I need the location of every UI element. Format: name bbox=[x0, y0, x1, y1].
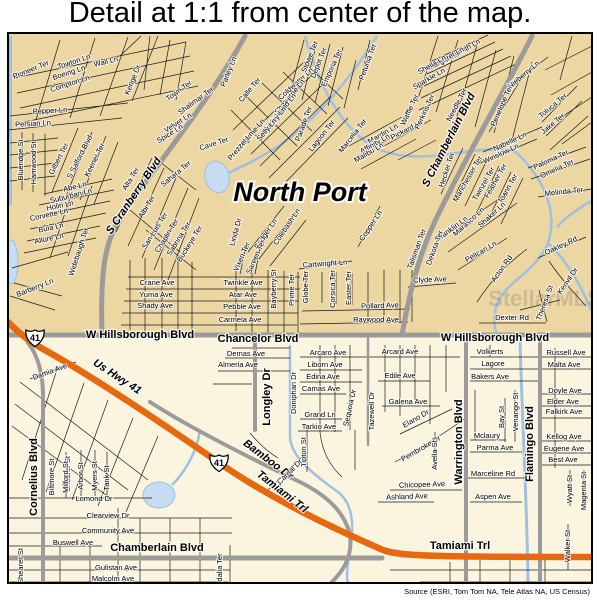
street-label: Kellog Ave bbox=[546, 432, 581, 441]
road-label: Warrington Blvd bbox=[453, 399, 465, 484]
street-label: Yuma Ave bbox=[139, 290, 173, 299]
street-label: Biltmore St bbox=[47, 458, 56, 496]
road-label: Chancelor Blvd bbox=[218, 333, 299, 345]
street-label: Pepper Ln bbox=[32, 105, 67, 116]
street-label: Doniphan Dr bbox=[289, 371, 298, 414]
street-label: Clearview Dr bbox=[87, 511, 130, 520]
street-label: Arbor St bbox=[76, 461, 85, 489]
street-label: Buswell Ave bbox=[53, 538, 93, 547]
street-label: Pollard Ave bbox=[361, 300, 399, 310]
street-label: Hamwood St bbox=[29, 141, 38, 185]
svg-text:41: 41 bbox=[214, 458, 224, 468]
street-label: Bayberry St bbox=[269, 268, 278, 308]
street-label: Marceline Rd bbox=[471, 469, 515, 478]
street-label: Mclaury bbox=[474, 431, 501, 440]
road-label: W Hillsborough Blvd bbox=[441, 332, 549, 344]
street-label: Eugene Ave bbox=[544, 444, 584, 453]
street-label: Pebble Ave bbox=[223, 302, 261, 311]
pond bbox=[143, 482, 175, 508]
street-label: Twinkle Ave bbox=[223, 278, 262, 287]
street-label: Tank St bbox=[102, 465, 111, 491]
street-label: Tazewell Dr bbox=[367, 391, 376, 430]
street-label: Almeria Ave bbox=[218, 360, 258, 369]
road-label: Chamberlain Blvd bbox=[110, 542, 204, 554]
street-label: Magenta St bbox=[579, 471, 588, 510]
street-label: Venango St bbox=[511, 392, 520, 432]
street-label: Clyde Ave bbox=[413, 274, 447, 284]
street-label: Best Ave bbox=[548, 455, 577, 464]
road-label: W Hillsborough Blvd bbox=[86, 329, 194, 341]
street-label: Bakers Ave bbox=[471, 372, 509, 381]
street-label: Adalia Ter bbox=[215, 553, 224, 587]
street-label: Milford St bbox=[61, 460, 70, 493]
city-label: North Port bbox=[233, 177, 367, 207]
street-label: Dexter Rd bbox=[495, 313, 529, 322]
street-label: Chicopee Ave bbox=[399, 479, 445, 490]
street-label: Crane Ave bbox=[140, 278, 175, 287]
street-label: Grand Ln bbox=[304, 410, 335, 419]
street-label: Arcaro Ave bbox=[310, 348, 347, 357]
street-label: Shearer St bbox=[16, 547, 25, 584]
street-label: Camas Ave bbox=[302, 384, 340, 393]
street-label: Galena Ave bbox=[389, 397, 428, 406]
road-label: Tamiami Trl bbox=[430, 540, 490, 552]
street-label: Raywood Ave bbox=[353, 315, 399, 324]
page: Detail at 1:1 from center of the map. bbox=[0, 0, 600, 600]
street-label: Ashland Ave bbox=[386, 491, 428, 501]
street-label: Wyatt St bbox=[565, 474, 574, 503]
street-label: Avella St bbox=[430, 439, 439, 469]
street-label: Atar Ave bbox=[229, 290, 257, 299]
street-label: Russell Ave bbox=[546, 348, 585, 357]
road-label: Flamingo Blvd bbox=[524, 406, 536, 482]
street-label: Walker St bbox=[563, 529, 572, 562]
street-label: Elder Ave bbox=[547, 397, 579, 406]
street-label: Bay St bbox=[497, 405, 506, 428]
road-label: Longley Dr bbox=[261, 368, 273, 426]
street-label: Liborn Ave bbox=[307, 360, 342, 369]
street-label: Blueridge St bbox=[16, 139, 25, 181]
street-label: Shady Ave bbox=[137, 301, 173, 310]
street-label: Doyle Ave bbox=[548, 386, 582, 395]
street-label: Malta Ave bbox=[548, 360, 581, 369]
street-label: Arcard Ave bbox=[382, 347, 419, 356]
street-label: Gulistan Ave bbox=[95, 563, 137, 572]
street-label: Carmela Ave bbox=[219, 315, 262, 324]
street-label: Lagore bbox=[481, 359, 504, 368]
pond bbox=[4, 240, 18, 284]
street-label: Volkerts bbox=[477, 347, 504, 356]
street-label: Aspen Ave bbox=[475, 492, 511, 501]
map-canvas[interactable]: North PortStellarMLSS Cranberry BlvdS Ch… bbox=[0, 0, 600, 600]
street-label: Easter Ter bbox=[344, 270, 353, 305]
street-label: Corsica Ter bbox=[328, 270, 337, 308]
street-label: Edile Ave bbox=[384, 371, 415, 380]
map-layers: North PortStellarMLSS Cranberry BlvdS Ch… bbox=[4, 33, 600, 587]
street-label: Tarkio Ave bbox=[302, 422, 336, 431]
map-attribution: Source (ESRI, Tom Tom NA, Tele Atlas NA,… bbox=[404, 587, 590, 596]
street-label: Globe Ter bbox=[301, 270, 310, 303]
street-label: Community Ave bbox=[82, 526, 134, 535]
street-label: Malcolm Ave bbox=[92, 574, 134, 583]
street-label: Parma Ave bbox=[477, 443, 514, 452]
street-label: Edina Ave bbox=[306, 372, 340, 381]
street-label: Prime Ter bbox=[287, 274, 296, 306]
street-label: Lomond Dr bbox=[75, 494, 113, 503]
street-label: Falkirk Ave bbox=[546, 407, 583, 416]
road-label: Cornelius Blvd bbox=[28, 438, 40, 516]
street-label: Demas Ave bbox=[227, 349, 265, 358]
street-label: Persian Ln bbox=[15, 118, 51, 129]
street-label: Myers St bbox=[90, 460, 99, 491]
svg-text:41: 41 bbox=[30, 333, 40, 343]
